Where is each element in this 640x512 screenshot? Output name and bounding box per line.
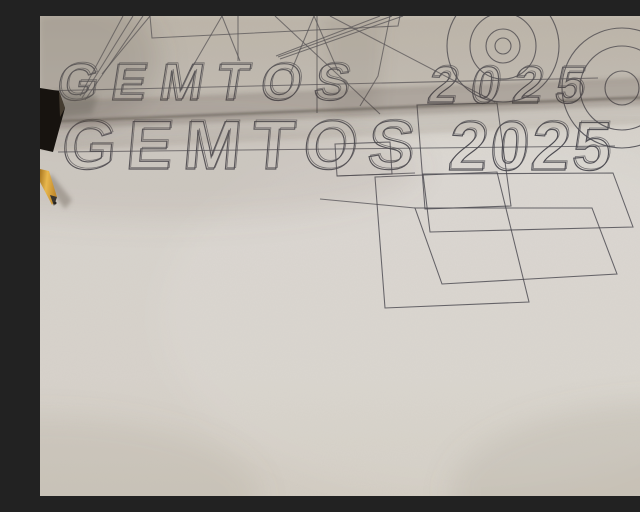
plotter-photo: GEMTOSGEMTOS20252025GEMTOSGEMTOS20252025 bbox=[40, 16, 640, 496]
paper-grain bbox=[40, 16, 640, 496]
pen-tip-point bbox=[54, 202, 57, 205]
plotter-scene: GEMTOSGEMTOS20252025GEMTOSGEMTOS20252025 bbox=[40, 16, 640, 496]
